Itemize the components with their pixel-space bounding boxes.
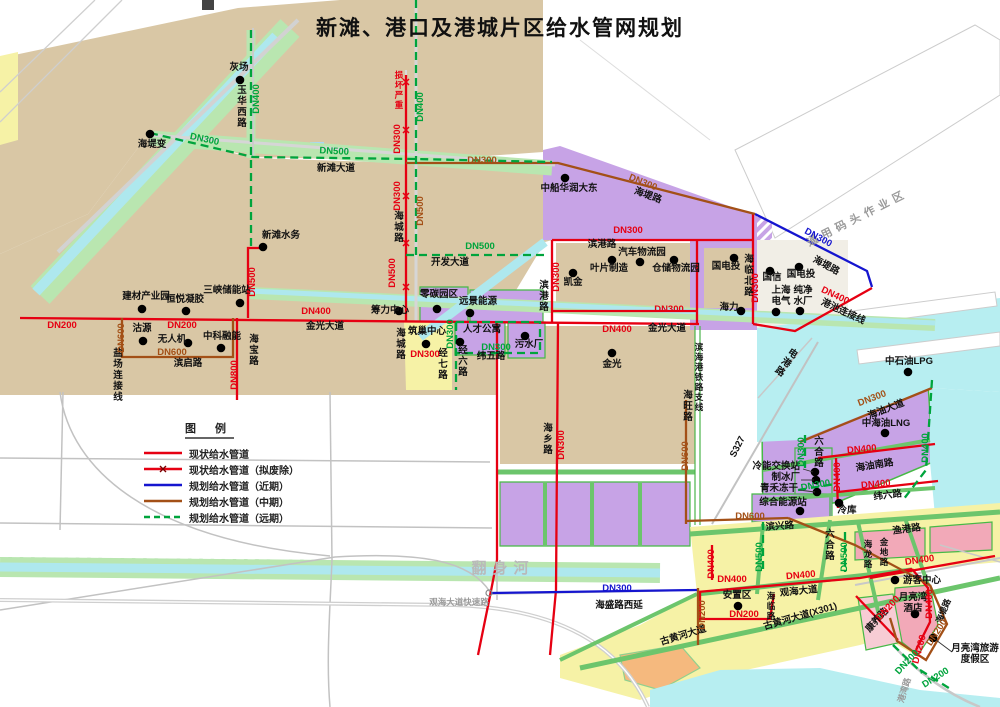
map-label: 滨启路 [174,357,203,369]
map-label: 经六路 [458,344,468,378]
map-label: 中船华润大东 [540,182,598,194]
map-label: 海力 [719,301,738,313]
map-label: 纯净水厂 [793,284,813,307]
map-label: 滨兴路 [765,519,795,533]
legend-item-2: 规划给水管道（近期） [143,477,363,493]
facility-dot [636,258,645,267]
zone-dark-rect-top [202,0,214,10]
map-label: 开发大道 [431,256,470,268]
map-label: 海旺路 [683,389,693,423]
pipe-size-label: DN300 [602,583,632,594]
facility-dot [466,309,475,318]
feature-river-fanshen-water [0,567,660,573]
zone-zone-south-strip [500,482,690,546]
pipe-size-label: DN300 [392,181,403,211]
facility-dot [139,337,148,346]
legend-item-label: 现状给水管道 [189,446,249,461]
pipe-size-label: DN500 [754,542,765,572]
pipe-size-label: DN300 [467,155,497,166]
facility-dot [608,349,617,358]
legend-item-0: 现状给水管道 [143,445,363,461]
pipe-size-label: DN500 [415,196,426,226]
map-label: 恒悦凝胶 [166,293,205,305]
pipe-size-label: DN500 [387,258,398,288]
map-label: 金光大道 [305,320,345,332]
facility-dot [433,305,442,314]
pipe-size-label: DN400 [251,84,262,114]
map-label: 损坏严重 [394,70,404,110]
map-label: 滨海港铁路支线 [694,342,704,412]
pipe-size-label: DN300 [410,349,440,360]
pipe-size-label: DN500 [319,145,349,158]
map-label: 六合路 [814,435,824,469]
legend-line-swatch [143,464,183,474]
legend-line-swatch [143,480,183,490]
map-label: 筹力中心 [370,304,410,316]
map-label: 游客中心 [903,574,942,586]
map-label: 筑巢中心 [408,325,447,337]
legend-item-label: 规划给水管道（中期） [189,494,289,509]
pipe-size-label: DN400 [415,92,426,122]
pipe-size-label: DN500 [839,542,850,572]
zone-yellow-strip-left [0,52,18,145]
map-label: 灰场 [229,61,249,73]
pipe-size-label: DN500 [247,267,258,297]
pipe-size-label: DN400 [717,574,747,585]
facility-dot [138,305,147,314]
pipe-size-label: DN300 [796,437,807,467]
map-label: 冷能交换站 [752,460,800,472]
map-title: 新滩、港口及港城片区给水管网规划 [0,12,1000,42]
map-label: 盐场连接线 [113,347,123,403]
facility-dot [217,344,226,353]
pipe-size-label: DN200 [47,320,77,331]
pipe-size-label: DN500 [465,241,495,252]
map-label: 滨港路 [588,238,617,250]
pipe-size-label: DN400 [832,462,843,492]
legend-item-label: 现状给水管道（拟废除） [189,462,299,477]
facility-dot [236,76,245,85]
facility-dot [259,243,268,252]
map-label: 六合路 [825,528,835,562]
map-label: 新滩大道 [317,162,356,174]
map-label: 污水厂 [515,338,544,350]
map-label: 三峡储能站 [203,284,251,296]
map-label: 翻身河 [471,559,534,577]
facility-dot [146,130,155,139]
pipe-size-label: DN300 [613,225,643,236]
map-label: 滨港路 [539,279,549,313]
pipe-size-label: DN200 [167,320,197,331]
pipe-size-label: DN300 [445,319,456,349]
feature-pier-line [580,40,710,140]
pipe-b [491,590,697,593]
pipe-size-label: DN200 [697,600,708,630]
pipe-size-label: DN400 [602,324,632,335]
facility-dot [772,308,781,317]
facility-dot [236,299,245,308]
map-label: 海城路 [394,210,404,244]
facility-dot [904,368,913,377]
map-svg: 灰场海堤变新滩水务建材产业园恒悦凝胶三峡储能站沽源无人机中科融能筹力中心零碳园区… [0,0,1000,707]
legend-item-3: 规划给水管道（中期） [143,493,363,509]
map-label: 建材产业园 [121,290,170,302]
legend-item-1: 现状给水管道（拟废除） [143,461,363,477]
map-label: 中科融能 [203,330,242,342]
pipe-size-label: DN600 [116,323,127,353]
pipe-size-label: DN400 [924,589,935,619]
map-label: 凯金 [563,276,583,288]
map-label: 金地路 [879,537,889,567]
facility-dot [796,307,805,316]
map-label: 沽源 [132,322,152,334]
map-label: 金光大道 [647,322,687,334]
facility-dot [422,340,431,349]
legend-line-swatch [143,496,183,506]
zone-pink-yugang-b [930,522,992,553]
map-label: 上海电气 [771,284,791,307]
map-label: 国电投 [787,268,816,280]
map-label: 零碳园区 [419,288,459,300]
pipe-size-label: DN300 [481,342,511,353]
pipe-size-label: DN400 [920,433,931,463]
pipe-size-label: DN400 [301,306,331,317]
map-label: 海宝路 [249,333,259,367]
legend-title: 图 例 [185,420,234,439]
pipe-size-label: DN400 [706,549,717,579]
map-label: 金光 [601,358,622,370]
map-label: 制冰厂 [771,471,800,483]
legend-line-swatch [143,512,183,522]
pipe-size-label: DN800 [229,360,240,390]
feature-grid-v1 [60,392,63,530]
pipe-size-label: DN300 [392,124,403,154]
map-label: 中石油LPG [885,355,933,367]
label-leader-line [936,640,952,652]
pipe-size-label: DN300 [551,262,562,292]
map-label: 海堤变 [138,138,167,150]
pipe-size-label: DN300 [654,304,684,315]
map-label: 叶片制造 [590,262,629,274]
facility-dot [182,307,191,316]
map-label: 青禾冻干 [760,482,799,494]
pipe-size-label: DN300 [556,430,567,460]
map-label: 海龙路 [863,539,873,569]
map-label: 冷库 [837,504,857,516]
map-label: 海盛路西延 [595,599,643,611]
map-label: 人才公寓 [463,323,501,335]
legend-item-4: 规划给水管道（远期） [143,509,363,525]
map-label: 国电投 [712,260,741,272]
map-label: 安置区 [723,589,752,601]
pipe-size-label: DN600 [735,511,765,522]
legend-line-swatch [143,448,183,458]
map-label: S327 [728,434,748,459]
map-label: 新滩水务 [262,229,301,241]
map-label: 汽车物流园 [618,246,666,258]
facility-dot [891,576,900,585]
map-label: 综合能源站 [759,496,807,508]
planning-map-canvas: 灰场海堤变新滩水务建材产业园恒悦凝胶三峡储能站沽源无人机中科融能筹力中心零碳园区… [0,0,1000,707]
legend: 图 例 现状给水管道现状给水管道（拟废除）规划给水管道（近期）规划给水管道（中期… [143,419,363,525]
facility-dot [561,174,570,183]
pipe-size-label: DN300 [750,273,761,303]
map-label: 远景能源 [459,295,498,307]
pipe-size-label: DN600 [680,441,691,471]
map-label: 海乡路 [543,422,553,456]
facility-dot [569,269,578,278]
map-label: 国信 [762,271,782,283]
map-label: 月亮湾旅游度假区 [950,642,999,665]
facility-dot [881,429,890,438]
map-label: 玉华西路 [237,85,247,129]
map-label: 海临路 [767,591,776,621]
legend-item-label: 规划给水管道（远期） [189,510,289,525]
feature-curve-road-3 [328,560,332,707]
map-label: 海城路 [396,327,406,361]
legend-rows: 现状给水管道现状给水管道（拟废除）规划给水管道（近期）规划给水管道（中期）规划给… [143,445,363,525]
map-label: 仓储物流园 [651,262,700,274]
map-label: 观海大道快速路 [429,597,489,607]
pipe-size-label: DN600 [157,347,187,358]
pipe-size-label: DN200 [729,609,759,620]
legend-item-label: 规划给水管道（近期） [189,478,289,493]
map-label: 无人机 [157,333,187,345]
